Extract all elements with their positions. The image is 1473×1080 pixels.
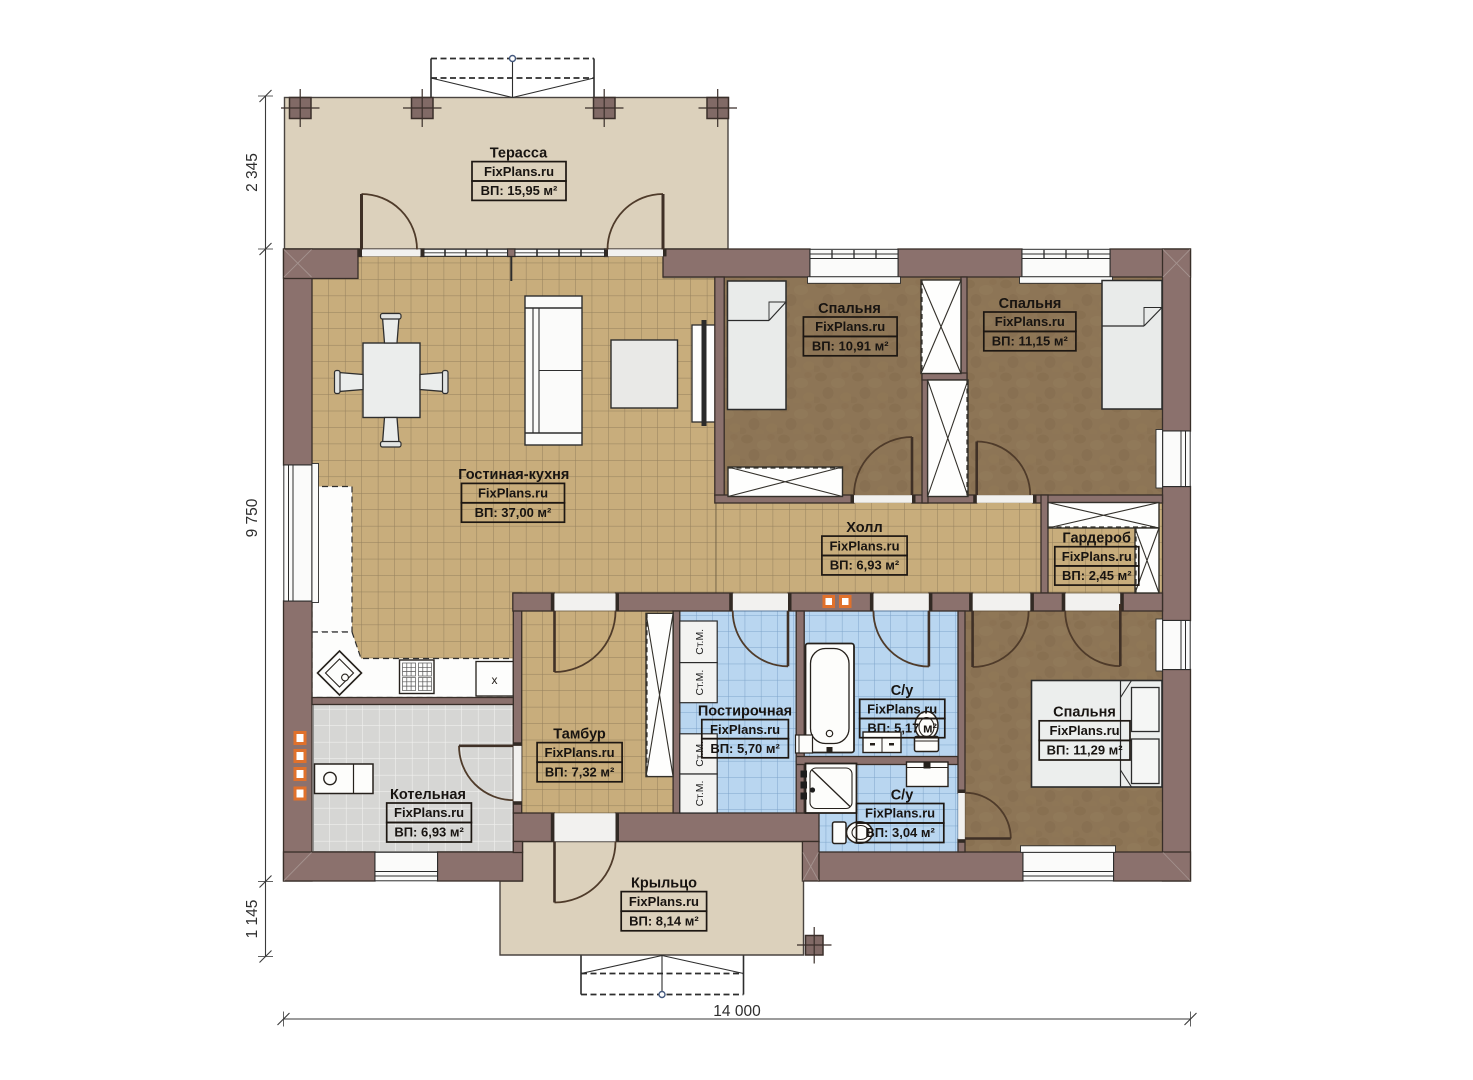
svg-text:FixPlans.ru: FixPlans.ru bbox=[995, 314, 1065, 329]
svg-text:Гостиная-кухня: Гостиная-кухня bbox=[458, 467, 569, 483]
svg-text:FixPlans.ru: FixPlans.ru bbox=[867, 702, 937, 717]
svg-text:FixPlans.ru: FixPlans.ru bbox=[394, 805, 464, 820]
svg-text:ВП: 6,93 м²: ВП: 6,93 м² bbox=[830, 558, 900, 573]
svg-text:Ст.М.: Ст.М. bbox=[694, 670, 706, 696]
svg-text:Тамбур: Тамбур bbox=[553, 726, 606, 742]
svg-text:FixPlans.ru: FixPlans.ru bbox=[478, 486, 548, 501]
svg-text:ВП: 2,45 м²: ВП: 2,45 м² bbox=[1062, 568, 1132, 583]
svg-text:14 000: 14 000 bbox=[713, 1003, 761, 1020]
svg-text:С/у: С/у bbox=[891, 683, 914, 699]
svg-text:Ст.М.: Ст.М. bbox=[694, 781, 706, 807]
svg-text:Спальня: Спальня bbox=[999, 296, 1062, 312]
svg-text:ВП: 11,29 м²: ВП: 11,29 м² bbox=[1047, 743, 1124, 758]
svg-text:ВП: 3,04 м²: ВП: 3,04 м² bbox=[865, 825, 935, 840]
svg-text:Ст.М.: Ст.М. bbox=[694, 629, 706, 655]
svg-text:Спальня: Спальня bbox=[818, 301, 881, 317]
svg-text:ВП: 8,14 м²: ВП: 8,14 м² bbox=[629, 913, 699, 928]
svg-text:ВП: 5,17 м²: ВП: 5,17 м² bbox=[867, 721, 937, 736]
svg-text:ВП: 15,95 м²: ВП: 15,95 м² bbox=[481, 183, 558, 198]
svg-text:FixPlans.ru: FixPlans.ru bbox=[865, 806, 935, 821]
svg-text:С/у: С/у bbox=[891, 787, 914, 803]
svg-text:Котельная: Котельная bbox=[390, 787, 466, 803]
svg-text:FixPlans.ru: FixPlans.ru bbox=[815, 319, 885, 334]
svg-text:ВП: 37,00 м²: ВП: 37,00 м² bbox=[475, 505, 552, 520]
svg-text:9 750: 9 750 bbox=[244, 498, 261, 537]
svg-text:Гардероб: Гардероб bbox=[1062, 531, 1131, 547]
svg-text:ВП: 6,93 м²: ВП: 6,93 м² bbox=[394, 825, 464, 840]
svg-text:Холл: Холл bbox=[846, 520, 882, 536]
svg-text:1 145: 1 145 bbox=[244, 900, 261, 939]
svg-text:FixPlans.ru: FixPlans.ru bbox=[484, 164, 554, 179]
svg-text:Спальня: Спальня bbox=[1053, 705, 1116, 721]
svg-text:Постирочная: Постирочная bbox=[698, 703, 792, 719]
svg-text:FixPlans.ru: FixPlans.ru bbox=[829, 538, 899, 553]
svg-text:Терасса: Терасса bbox=[490, 145, 548, 161]
svg-text:ВП: 11,15 м²: ВП: 11,15 м² bbox=[992, 334, 1069, 349]
svg-text:ВП: 5,70 м²: ВП: 5,70 м² bbox=[710, 741, 780, 756]
svg-text:FixPlans.ru: FixPlans.ru bbox=[710, 722, 780, 737]
svg-text:ВП: 10,91 м²: ВП: 10,91 м² bbox=[812, 339, 889, 354]
svg-text:2 345: 2 345 bbox=[244, 153, 261, 192]
svg-text:Ст.М.: Ст.М. bbox=[694, 741, 706, 767]
svg-text:ВП: 7,32 м²: ВП: 7,32 м² bbox=[545, 764, 615, 779]
svg-text:FixPlans.ru: FixPlans.ru bbox=[545, 745, 615, 760]
svg-text:FixPlans.ru: FixPlans.ru bbox=[1062, 549, 1132, 564]
svg-text:Крыльцо: Крыльцо bbox=[631, 875, 697, 891]
svg-text:FixPlans.ru: FixPlans.ru bbox=[629, 894, 699, 909]
svg-text:x: x bbox=[492, 673, 498, 687]
svg-text:FixPlans.ru: FixPlans.ru bbox=[1050, 723, 1120, 738]
